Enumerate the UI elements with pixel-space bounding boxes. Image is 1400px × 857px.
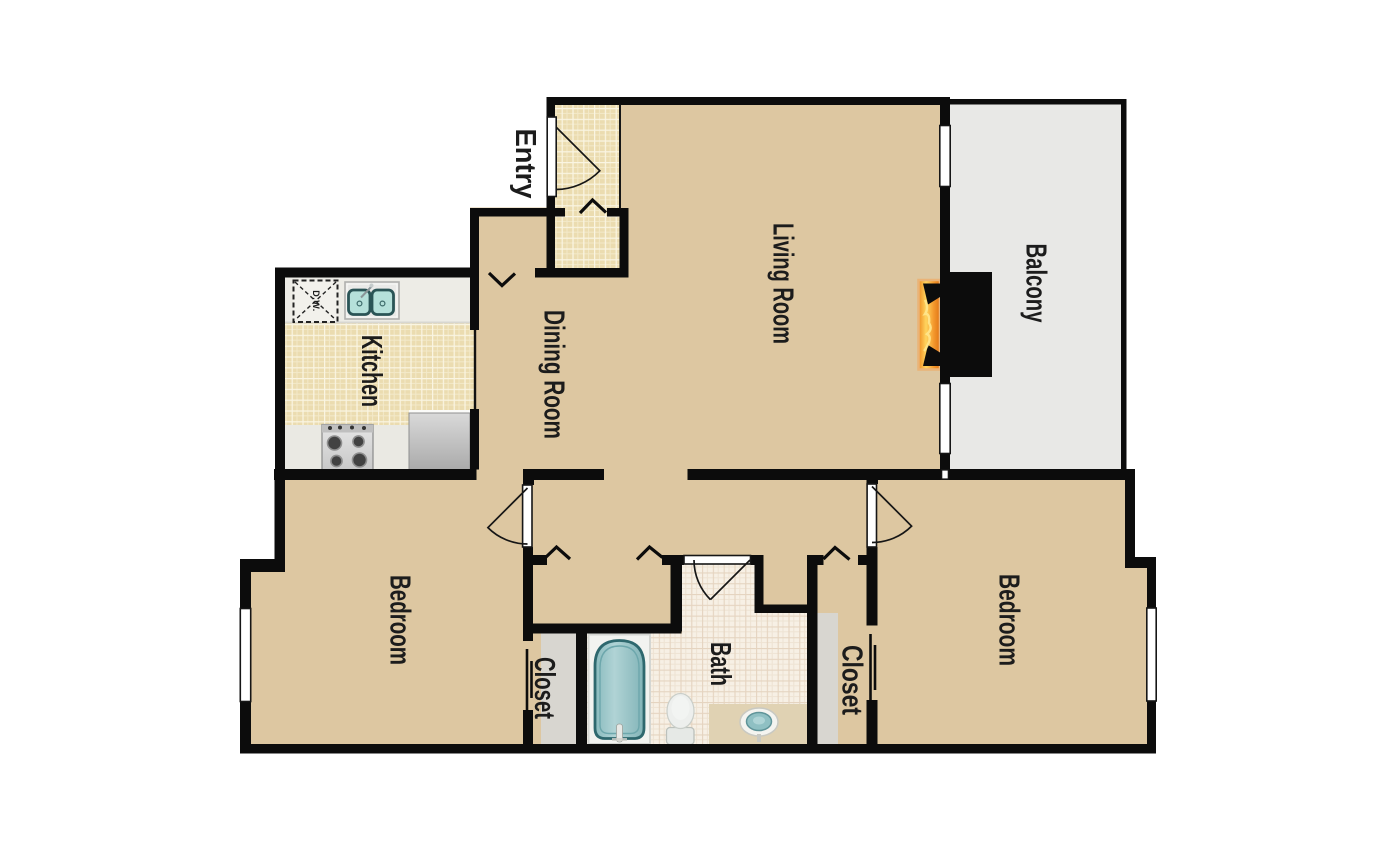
svg-text:Balcony: Balcony bbox=[1020, 244, 1052, 323]
svg-text:Dining Room: Dining Room bbox=[538, 310, 570, 439]
svg-text:Bedroom: Bedroom bbox=[384, 575, 416, 665]
svg-text:Bath: Bath bbox=[704, 642, 736, 686]
svg-text:Closet: Closet bbox=[836, 645, 868, 715]
svg-text:Living Room: Living Room bbox=[767, 223, 799, 344]
svg-text:Kitchen: Kitchen bbox=[355, 335, 387, 407]
svg-text:D.W.: D.W. bbox=[311, 290, 321, 312]
svg-text:Entry: Entry bbox=[509, 129, 541, 199]
svg-text:Closet: Closet bbox=[528, 657, 560, 719]
svg-text:Bedroom: Bedroom bbox=[993, 574, 1025, 666]
